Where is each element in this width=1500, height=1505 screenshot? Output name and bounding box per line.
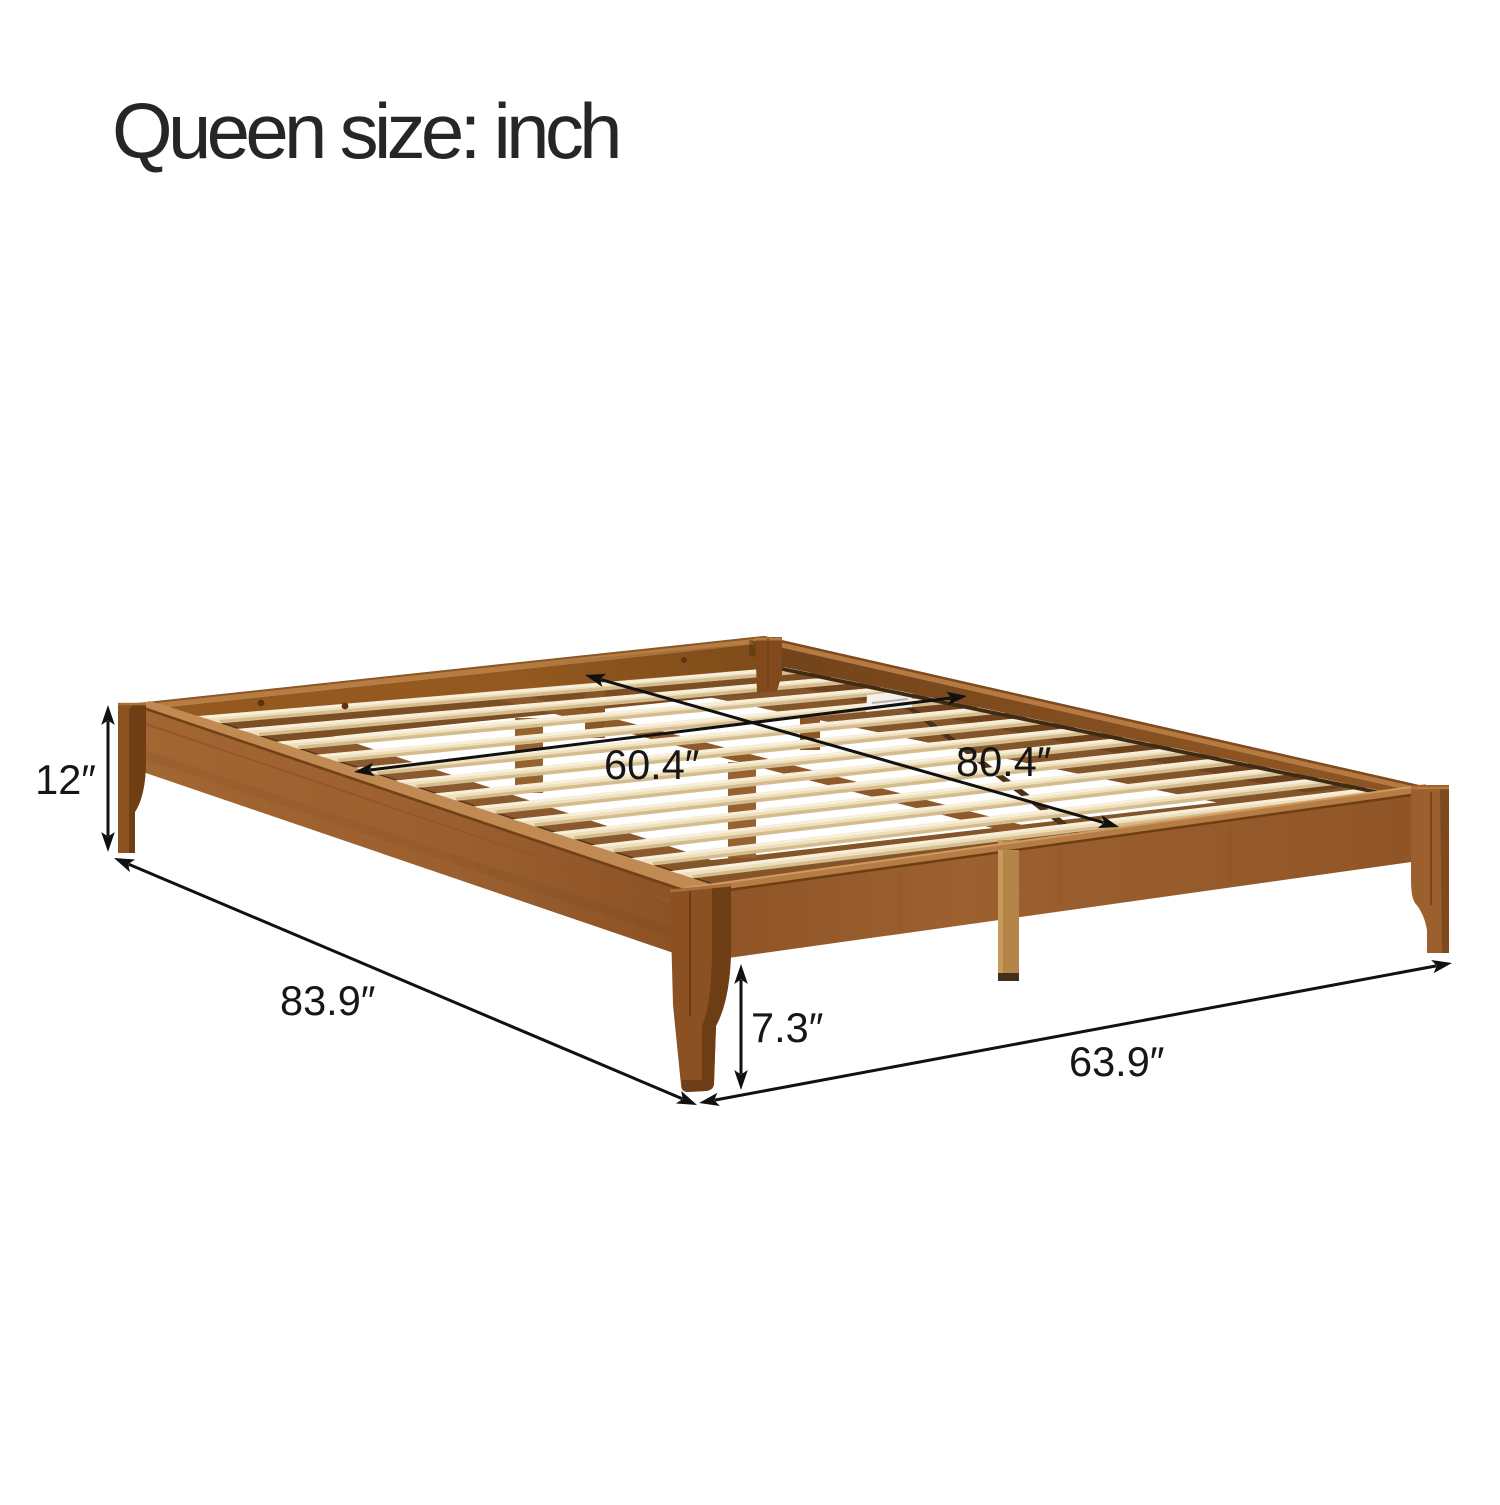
svg-text:83.9″: 83.9″ [280,977,375,1024]
svg-text:60.4″: 60.4″ [604,741,699,788]
svg-text:12″: 12″ [35,756,96,803]
svg-text:80.4″: 80.4″ [956,738,1051,785]
svg-text:Queen size: inch: Queen size: inch [112,87,618,175]
svg-text:7.3″: 7.3″ [751,1004,823,1051]
svg-text:63.9″: 63.9″ [1069,1038,1164,1085]
